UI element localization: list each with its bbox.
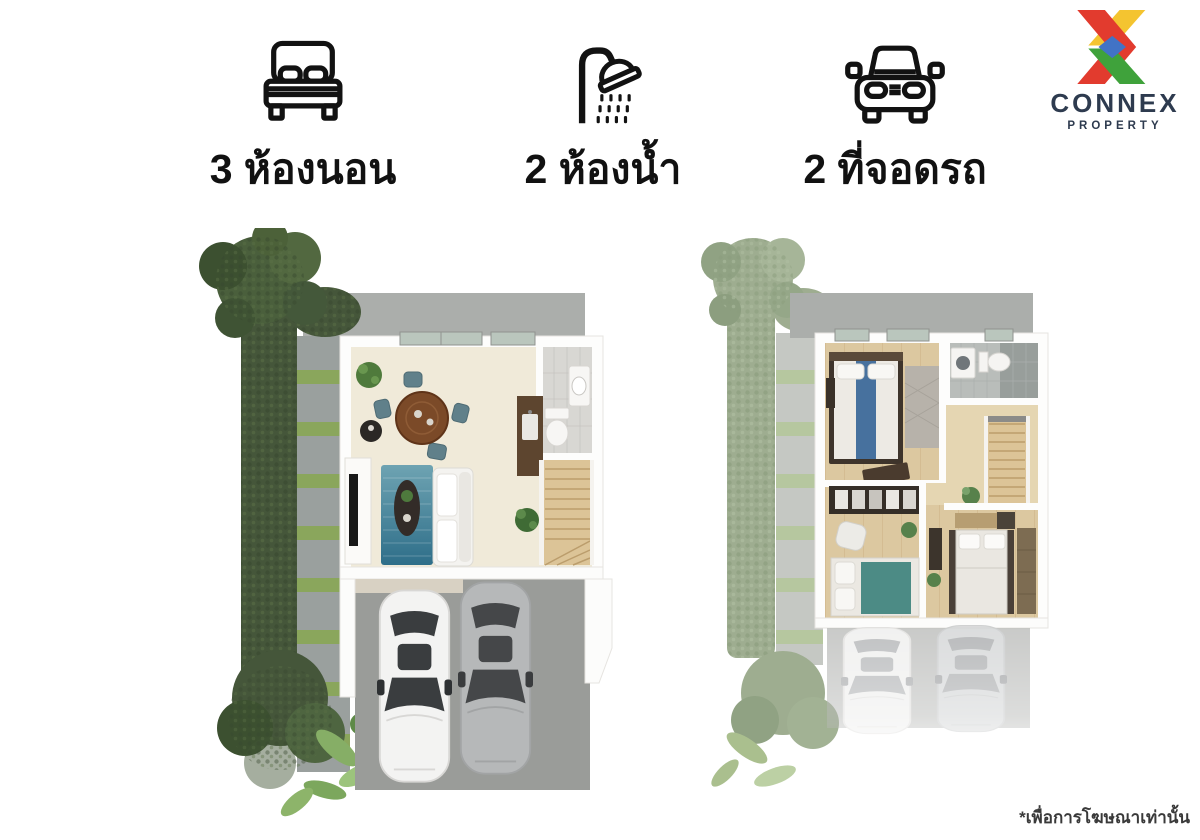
disclaimer-text: *เพื่อการโฆษณาเท่านั้น: [1019, 804, 1190, 831]
logo-name: CONNEX: [1036, 88, 1194, 119]
staircase: [984, 416, 1030, 504]
tv-console: [345, 458, 371, 564]
pillow: [835, 562, 855, 584]
garage-ghost: [827, 626, 1030, 734]
water-drops: [597, 94, 631, 123]
car-icon: [836, 26, 954, 138]
feature-parking: 2 ที่จอดรถ: [770, 26, 1020, 193]
pillow: [868, 364, 895, 379]
garage-left-wall: [340, 579, 355, 697]
feature-bathrooms: 2 ห้องน้ำ: [478, 26, 728, 193]
connex-logo: CONNEX PROPERTY: [1036, 10, 1194, 132]
tv-unit: [929, 528, 942, 570]
bed-icon: [247, 26, 359, 138]
bathroom: [536, 347, 593, 460]
window: [835, 329, 869, 341]
plant: [901, 522, 917, 538]
house-bottom-wall: [815, 618, 1048, 628]
pillow: [959, 534, 980, 549]
garage-right-wall: [585, 579, 612, 683]
floorplan-first-floor: [175, 228, 615, 818]
sofa: [433, 468, 473, 566]
stair-plant: [515, 508, 539, 532]
car-white-ghost: [841, 628, 913, 734]
window: [491, 332, 535, 345]
teal-blanket: [861, 562, 911, 614]
tree: [199, 228, 327, 338]
coffee-table: [394, 480, 420, 536]
cabinet: [1017, 528, 1036, 614]
parking-label: 2 ที่จอดรถ: [803, 146, 986, 193]
shower-icon: [553, 26, 653, 138]
window: [985, 329, 1013, 341]
car-gray: [458, 582, 533, 773]
side-table: [360, 420, 382, 442]
corner-plant: [356, 362, 382, 388]
car-gray-ghost: [935, 626, 1007, 732]
pillow: [837, 364, 864, 379]
toilet: [979, 352, 988, 372]
shrub-faded: [707, 651, 839, 791]
pillow: [835, 588, 855, 610]
dresser: [826, 378, 835, 408]
connex-x-icon: [1069, 10, 1161, 84]
bedroom-rug: [905, 366, 939, 448]
tv: [349, 474, 358, 546]
staircase: [539, 460, 594, 565]
page: 3 ห้องนอน 2 ห้องน้ำ: [0, 0, 1200, 840]
toilet: [545, 408, 569, 419]
logo-subtitle: PROPERTY: [1036, 120, 1194, 132]
bedrooms-label: 3 ห้องนอน: [210, 146, 397, 193]
bathrooms-label: 2 ห้องน้ำ: [525, 146, 682, 193]
kitchen-sink: [522, 414, 538, 440]
tree-faded: [701, 238, 805, 326]
car-white: [377, 590, 452, 781]
bathroom: [944, 343, 1038, 405]
garage: [340, 567, 612, 790]
plant: [927, 573, 941, 587]
garage-front-wall: [340, 567, 603, 579]
pillow: [984, 534, 1005, 549]
floorplan-second-floor: [655, 228, 1085, 808]
window: [887, 329, 929, 341]
feature-bedrooms: 3 ห้องนอน: [178, 26, 428, 193]
